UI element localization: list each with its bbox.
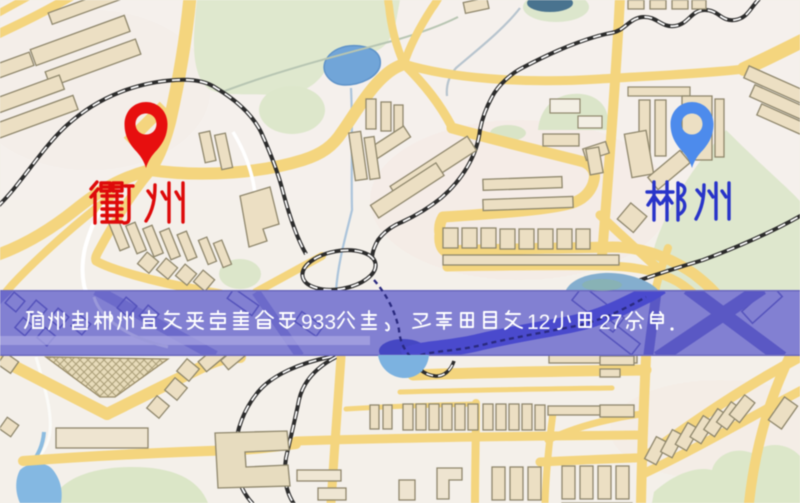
svg-text:27: 27 — [599, 311, 622, 334]
svg-text:12: 12 — [527, 311, 550, 334]
svg-text:933: 933 — [301, 311, 336, 334]
